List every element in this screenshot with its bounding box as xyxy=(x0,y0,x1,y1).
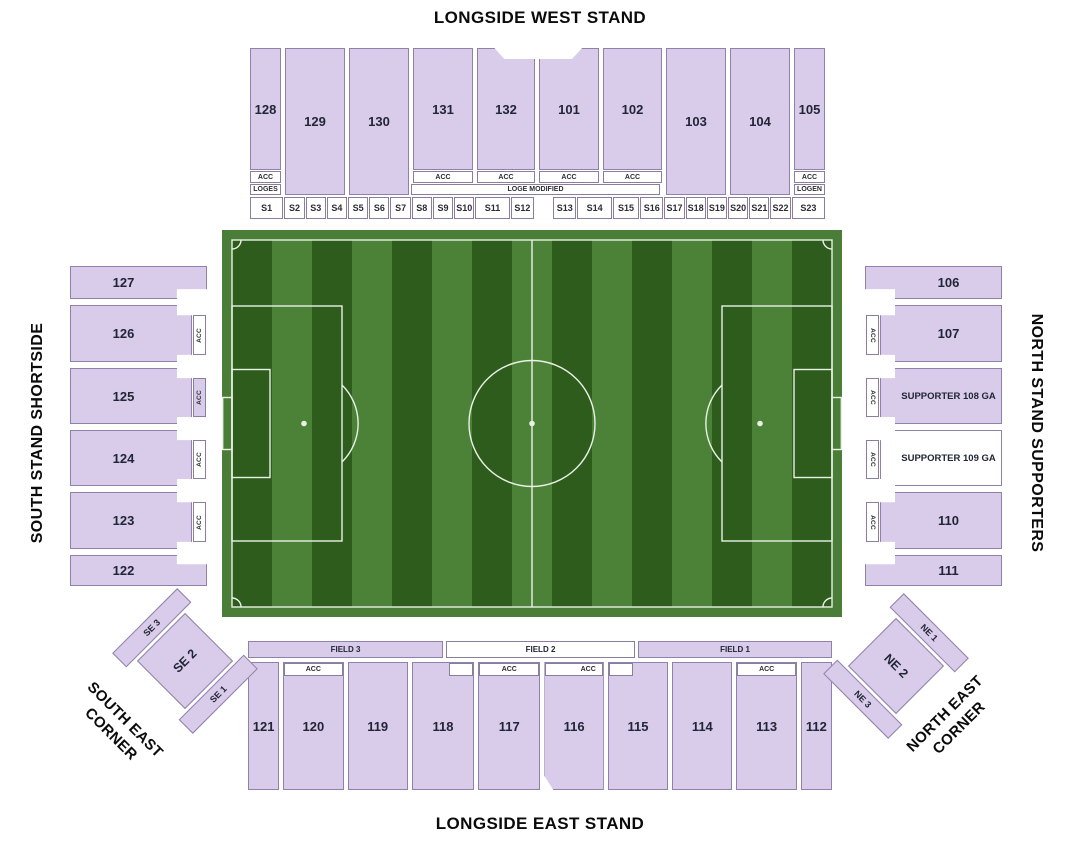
section-supporter-108[interactable]: SUPPORTER 108 GA xyxy=(880,368,1002,424)
blank-box-115[interactable] xyxy=(609,663,633,676)
section-120[interactable]: ACC 120 xyxy=(283,662,343,790)
section-103[interactable]: 103 xyxy=(666,48,726,195)
suite-s17[interactable]: S17 xyxy=(664,197,684,219)
suite-s4[interactable]: S4 xyxy=(327,197,347,219)
section-128[interactable]: 128 xyxy=(250,48,281,170)
acc-box-128[interactable]: ACC xyxy=(250,171,281,183)
south-stand-title: SOUTH STAND SHORTSIDE xyxy=(29,323,47,544)
suite-s12[interactable]: S12 xyxy=(511,197,534,219)
suite-s9[interactable]: S9 xyxy=(433,197,453,219)
suite-s6[interactable]: S6 xyxy=(369,197,389,219)
suite-s13[interactable]: S13 xyxy=(553,197,576,219)
suite-s19[interactable]: S19 xyxy=(707,197,727,219)
acc-box-120[interactable]: ACC xyxy=(284,663,342,676)
suite-s15[interactable]: S15 xyxy=(613,197,639,219)
acc-box-116[interactable]: ACC xyxy=(545,663,602,676)
acc-box-132[interactable]: ACC xyxy=(477,171,535,183)
section-118[interactable]: 118 xyxy=(412,662,474,790)
suite-s10[interactable]: S10 xyxy=(454,197,474,219)
section-113[interactable]: ACC 113 xyxy=(736,662,796,790)
acc-box-102[interactable]: ACC xyxy=(603,171,662,183)
section-127[interactable]: 127 xyxy=(70,266,207,299)
section-105[interactable]: 105 xyxy=(794,48,825,170)
acc-box-109[interactable]: ACC xyxy=(866,440,879,479)
acc-box-110[interactable]: ACC xyxy=(866,502,879,542)
suite-s14[interactable]: S14 xyxy=(577,197,611,219)
section-130[interactable]: 130 xyxy=(349,48,409,195)
acc-box-131[interactable]: ACC xyxy=(413,171,473,183)
suite-s22[interactable]: S22 xyxy=(770,197,790,219)
acc-box-117[interactable]: ACC xyxy=(479,663,539,676)
acc-box-125[interactable]: ACC xyxy=(193,378,206,417)
north-stand: 106 107 ACC SUPPORTER 108 GA ACC SUPPORT… xyxy=(865,266,1002,586)
section-101[interactable]: 101 xyxy=(539,48,599,170)
stadium-seat-map: LONGSIDE WEST STAND LONGSIDE EAST STAND … xyxy=(0,0,1080,858)
section-114[interactable]: 114 xyxy=(672,662,732,790)
section-102[interactable]: 102 xyxy=(603,48,662,170)
suite-s20[interactable]: S20 xyxy=(728,197,748,219)
section-123[interactable]: 123 xyxy=(70,492,192,549)
soccer-pitch xyxy=(222,230,842,617)
acc-box-105[interactable]: ACC xyxy=(794,171,825,183)
section-122[interactable]: 122 xyxy=(70,555,207,586)
section-117[interactable]: ACC 117 xyxy=(478,662,540,790)
section-supporter-109[interactable]: SUPPORTER 109 GA xyxy=(880,430,1002,486)
field-bars: FIELD 3 FIELD 2 FIELD 1 xyxy=(248,641,832,658)
suite-s2[interactable]: S2 xyxy=(284,197,304,219)
acc-box-108[interactable]: ACC xyxy=(866,378,879,417)
suite-s23[interactable]: S23 xyxy=(792,197,825,219)
section-119[interactable]: 119 xyxy=(348,662,408,790)
section-104[interactable]: 104 xyxy=(730,48,790,195)
acc-box-124[interactable]: ACC xyxy=(193,440,206,479)
west-stand: 128 ACC LOGES 129 130 131 ACC 132 ACC 10… xyxy=(250,48,825,219)
section-124[interactable]: 124 xyxy=(70,430,192,486)
section-116[interactable]: ACC 116 xyxy=(544,662,603,790)
section-110[interactable]: 110 xyxy=(880,492,1002,549)
section-115[interactable]: 115 xyxy=(608,662,668,790)
suite-s5[interactable]: S5 xyxy=(348,197,368,219)
suite-s18[interactable]: S18 xyxy=(686,197,706,219)
field-3-bar[interactable]: FIELD 3 xyxy=(248,641,443,658)
loge-modified-bar[interactable]: LOGE MODIFIED xyxy=(411,184,660,195)
acc-box-123[interactable]: ACC xyxy=(193,502,206,542)
acc-box-101[interactable]: ACC xyxy=(539,171,599,183)
suite-s7[interactable]: S7 xyxy=(390,197,410,219)
suite-s8[interactable]: S8 xyxy=(412,197,432,219)
acc-box-113[interactable]: ACC xyxy=(737,663,795,676)
acc-box-126[interactable]: ACC xyxy=(193,315,206,355)
suites-row: S1 S2 S3 S4 S5 S6 S7 S8 S9 S10 S11 S12 S… xyxy=(250,197,825,219)
suite-s1[interactable]: S1 xyxy=(250,197,283,219)
field-2-bar[interactable]: FIELD 2 xyxy=(446,641,635,658)
east-stand: FIELD 3 FIELD 2 FIELD 1 121 ACC 120 119 … xyxy=(248,641,832,791)
east-stand-title: LONGSIDE EAST STAND xyxy=(0,814,1080,834)
blank-box-118[interactable] xyxy=(449,663,473,676)
loges-box[interactable]: LOGES xyxy=(250,184,281,195)
section-132[interactable]: 132 xyxy=(477,48,535,170)
suite-s16[interactable]: S16 xyxy=(640,197,663,219)
section-111[interactable]: 111 xyxy=(865,555,1002,586)
section-121[interactable]: 121 xyxy=(248,662,279,790)
field-1-bar[interactable]: FIELD 1 xyxy=(638,641,832,658)
section-107[interactable]: 107 xyxy=(880,305,1002,362)
section-129[interactable]: 129 xyxy=(285,48,345,195)
section-125[interactable]: 125 xyxy=(70,368,192,424)
section-112[interactable]: 112 xyxy=(801,662,832,790)
logen-box[interactable]: LOGEN xyxy=(794,184,825,195)
west-stand-title: LONGSIDE WEST STAND xyxy=(0,8,1080,28)
section-131[interactable]: 131 xyxy=(413,48,473,170)
south-stand: 127 126 ACC 125 ACC 124 ACC 123 ACC 122 xyxy=(70,266,207,586)
section-126[interactable]: 126 xyxy=(70,305,192,362)
suite-s21[interactable]: S21 xyxy=(749,197,769,219)
section-106[interactable]: 106 xyxy=(865,266,1002,299)
north-stand-title: NORTH STAND SUPPORTERS xyxy=(1027,314,1045,553)
acc-box-107[interactable]: ACC xyxy=(866,315,879,355)
suite-s11[interactable]: S11 xyxy=(475,197,509,219)
suite-s3[interactable]: S3 xyxy=(306,197,326,219)
